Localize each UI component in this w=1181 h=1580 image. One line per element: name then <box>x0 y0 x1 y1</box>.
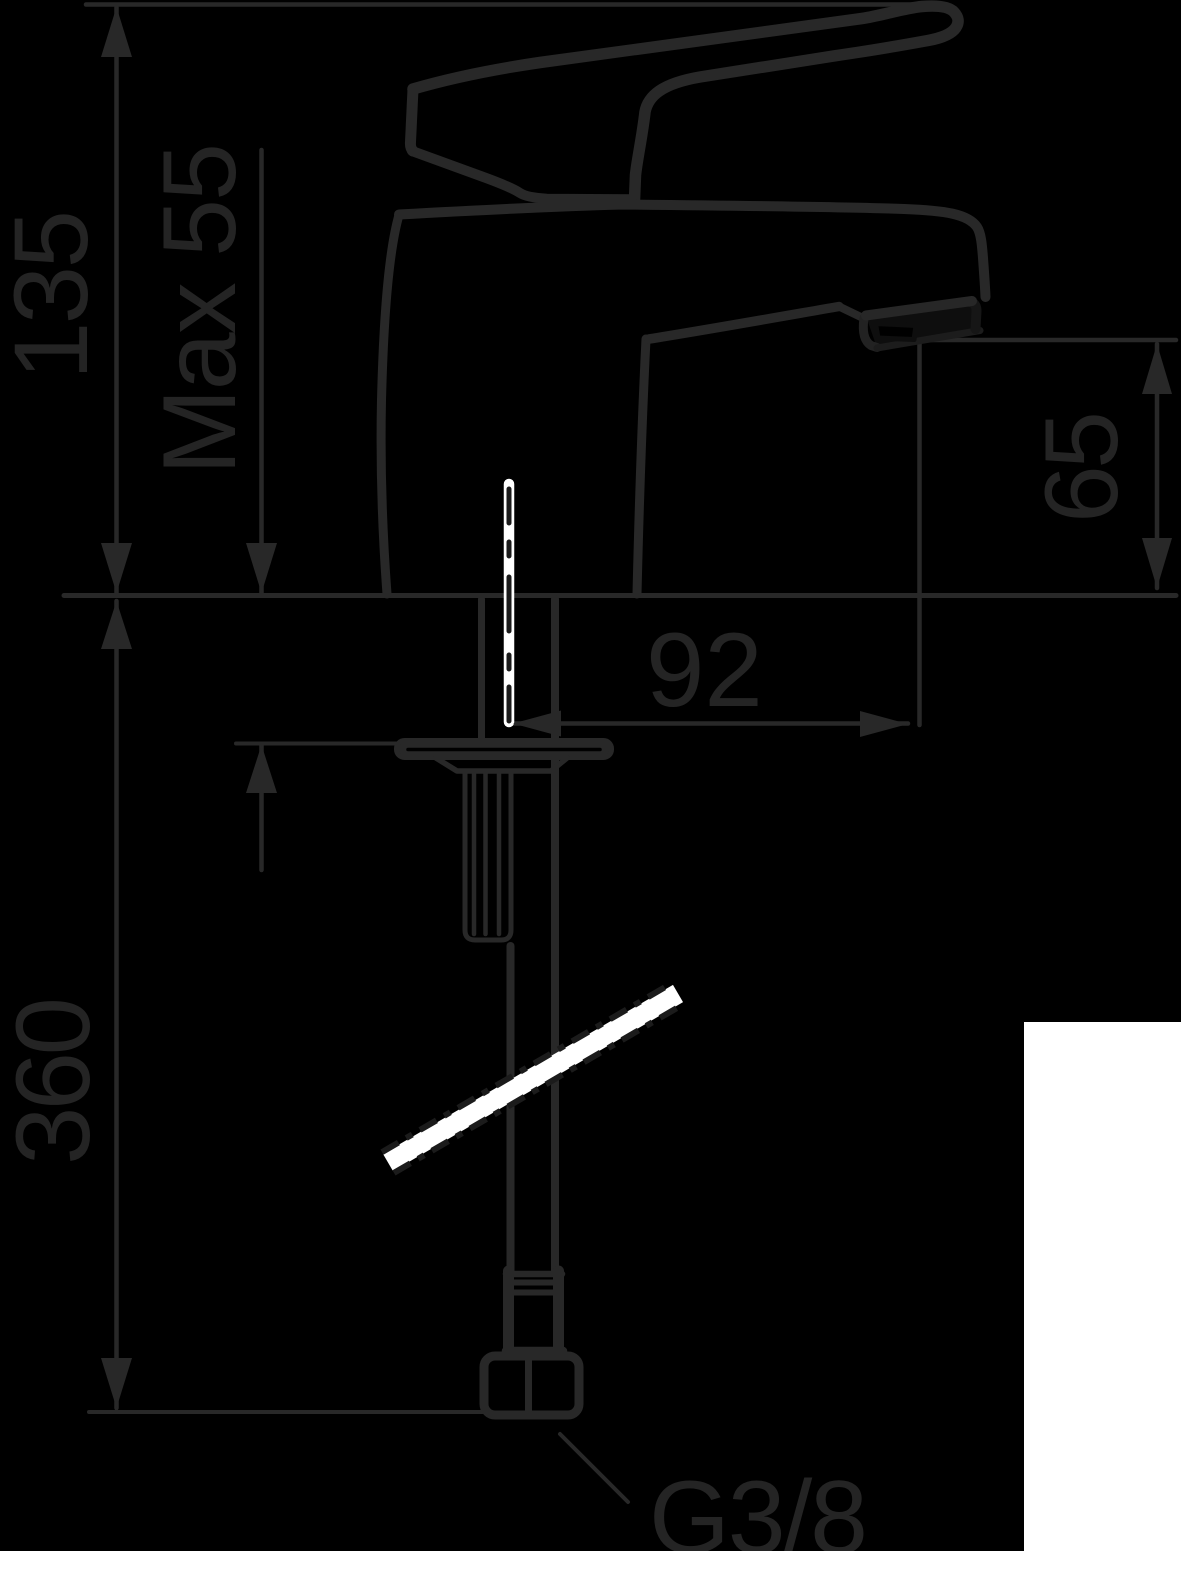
svg-text:92: 92 <box>646 612 763 729</box>
svg-text:360: 360 <box>0 997 112 1165</box>
svg-text:65: 65 <box>1024 411 1140 523</box>
svg-text:Max 55: Max 55 <box>142 143 258 475</box>
svg-text:135: 135 <box>0 210 110 380</box>
